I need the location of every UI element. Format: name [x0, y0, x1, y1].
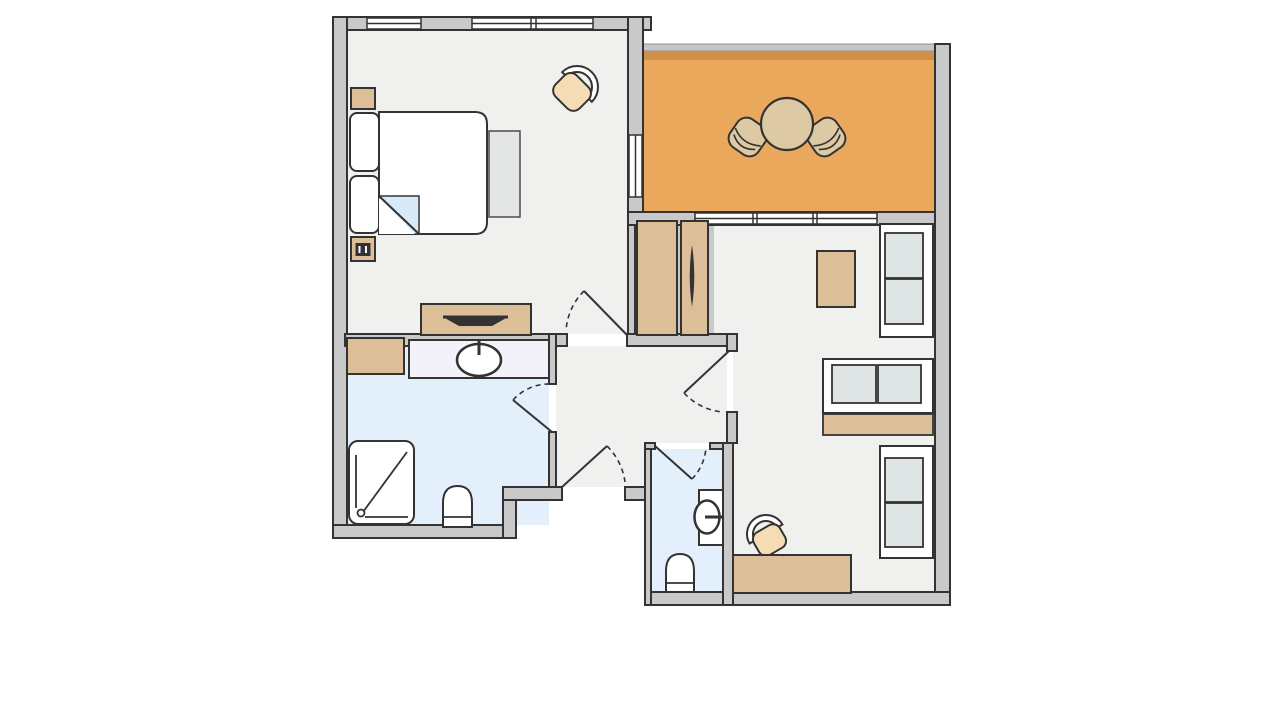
wall-hall-left-upper	[549, 334, 556, 384]
desk	[733, 555, 851, 593]
wardrobe-with-mirror	[681, 221, 708, 335]
side-table	[817, 251, 855, 307]
wall-left	[333, 17, 347, 538]
window-bedroom-top-right	[472, 18, 593, 29]
bathroom-toilet	[443, 486, 472, 527]
wall-living-left-upper	[727, 334, 737, 351]
bedside-cushion	[350, 176, 379, 233]
wall-wc-right	[723, 443, 733, 605]
blanket-fold	[379, 196, 419, 234]
terrace-railing	[643, 44, 935, 51]
vanity-counter	[409, 340, 549, 378]
wc-washbasin	[695, 490, 724, 545]
wall-hall-left-lower	[549, 432, 556, 487]
bathroom-cabinet	[347, 338, 404, 374]
tv-sideboard	[421, 304, 531, 335]
bench	[489, 131, 520, 217]
wardrobe	[637, 221, 677, 335]
floor-plan-page	[0, 0, 1280, 720]
wall-entry-left	[503, 487, 562, 500]
wall-right	[935, 44, 950, 605]
wall-living-left-lower	[727, 412, 737, 443]
nightstand-with-phone	[351, 237, 375, 261]
window-bedroom-side	[629, 135, 642, 197]
window-bedroom-top-left	[367, 18, 421, 29]
sofa-bottom-right	[880, 446, 933, 558]
window-living-terrace	[695, 213, 877, 224]
wall-bedroom-right-lower	[628, 212, 635, 346]
terrace-edge-band	[643, 51, 935, 60]
wall-wc-left	[645, 443, 651, 605]
console-table	[823, 414, 933, 435]
sofa-top-right	[880, 224, 933, 337]
wc-toilet	[666, 554, 694, 592]
bedside-cushion	[350, 113, 379, 171]
drain-icon	[358, 510, 365, 517]
wall-wc-top-left	[645, 443, 655, 449]
shower	[349, 441, 414, 524]
wardrobes	[637, 221, 708, 335]
round-table	[761, 98, 813, 150]
sofa-middle	[823, 359, 933, 413]
floor-plan-canvas	[0, 0, 1280, 720]
wall-bottom-left	[333, 525, 516, 538]
nightstand	[351, 88, 375, 109]
